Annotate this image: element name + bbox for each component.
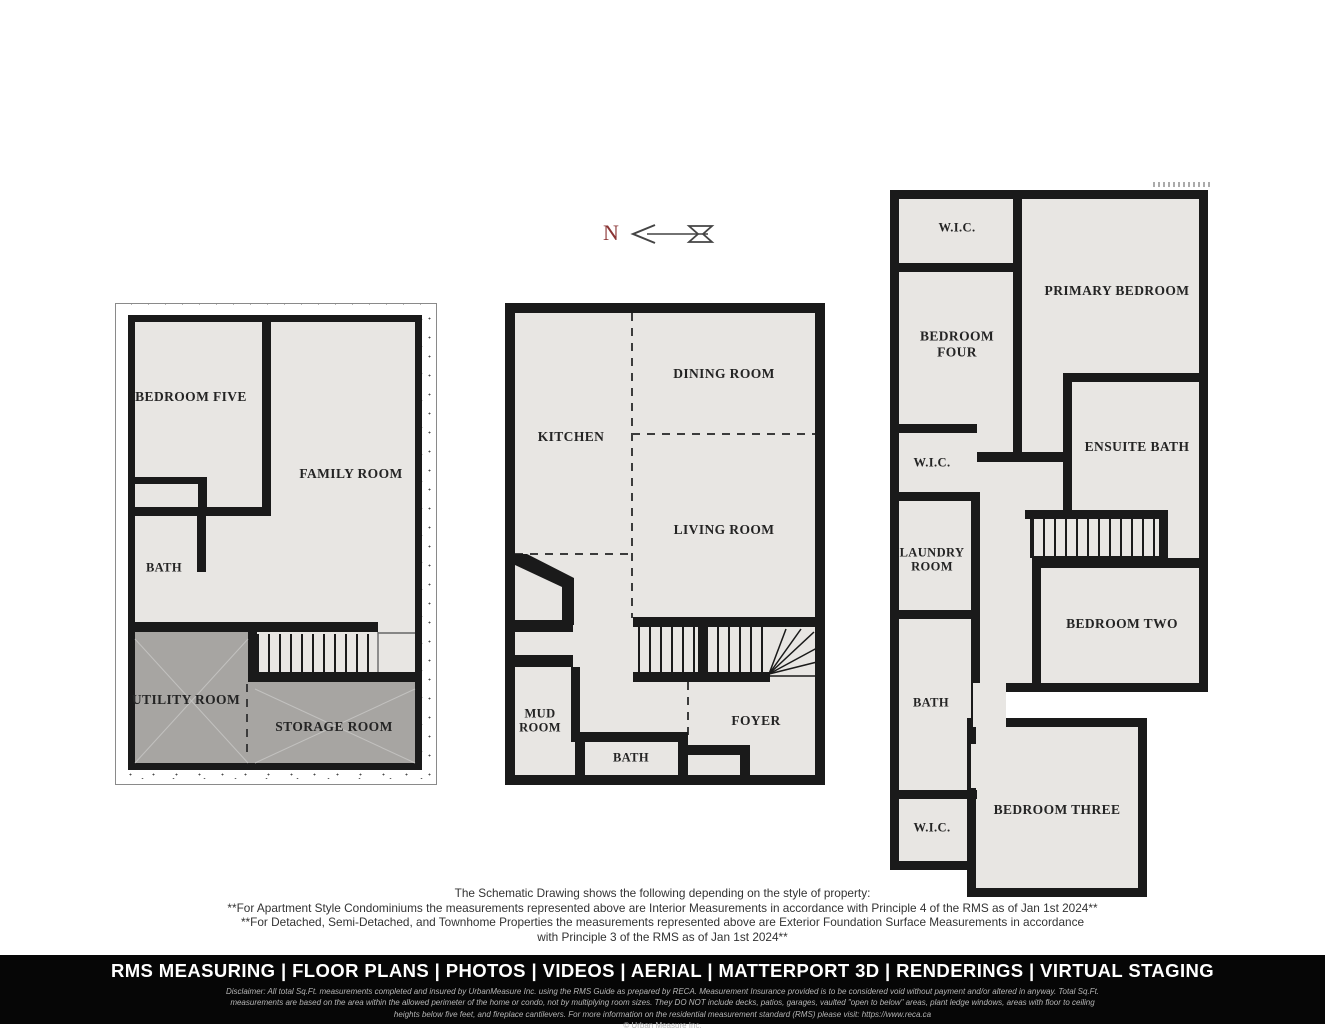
wall	[1025, 510, 1168, 519]
room-label-mud-room: MUD ROOM	[509, 707, 571, 736]
room-label-wic-mid: W.I.C.	[913, 456, 950, 471]
room-label-bedroom-three: BEDROOM THREE	[994, 802, 1121, 818]
upper-floor-plan: W.I.C. PRIMARY BEDROOM BEDROOM FOUR ENSU…	[888, 186, 1214, 902]
room-label-bedroom-four: BEDROOM FOUR	[910, 328, 1004, 359]
room-label-ensuite-bath: ENSUITE BATH	[1085, 439, 1190, 455]
footer-fine-print-line: Disclaimer: All total Sq.Ft. measurement…	[0, 986, 1325, 997]
wall	[898, 263, 1022, 272]
room-label-laundry-room: LAUNDRY ROOM	[896, 546, 968, 575]
room-label-utility-room: UTILITY ROOM	[132, 692, 240, 708]
disclaimer-line: **For Apartment Style Condominiums the m…	[0, 901, 1325, 916]
room-label-primary-bedroom: PRIMARY BEDROOM	[1045, 283, 1190, 299]
floor-plan-sheet: { "north_indicator": { "label": "N" }, "…	[0, 0, 1325, 1024]
footer-fine-print-line: measurements are based on the area withi…	[0, 997, 1325, 1008]
disclaimer-line: with Principle 3 of the RMS as of Jan 1s…	[0, 930, 1325, 945]
north-arrow: N	[595, 212, 735, 256]
footer-copyright: © Urban Measure Inc.	[0, 1021, 1325, 1030]
wall	[1063, 373, 1072, 518]
room-label-wic-bottom: W.I.C.	[913, 821, 950, 836]
hall-opening	[973, 683, 1006, 727]
disclaimer-line: **For Detached, Semi-Detached, and Townh…	[0, 915, 1325, 930]
wall	[1032, 558, 1041, 692]
door-opening	[971, 744, 980, 788]
room-label-bath-basement: BATH	[146, 561, 182, 576]
wall	[1013, 196, 1022, 462]
room-label-bedroom-two: BEDROOM TWO	[1066, 616, 1178, 632]
room-label-storage-room: STORAGE ROOM	[275, 719, 392, 735]
room-label-family-room: FAMILY ROOM	[299, 466, 402, 482]
wall	[1063, 373, 1208, 382]
north-letter: N	[603, 220, 619, 246]
basement-plan: BEDROOM FIVE FAMILY ROOM BATH UTILITY RO…	[115, 303, 437, 785]
room-label-foyer: FOYER	[731, 713, 780, 729]
room-label-bath-main: BATH	[613, 751, 649, 766]
wall	[890, 424, 977, 433]
wall	[890, 610, 977, 619]
basement-decor	[115, 303, 437, 785]
room-label-living-room: LIVING ROOM	[674, 522, 775, 538]
wall	[977, 452, 1072, 462]
staircase-upper	[1030, 519, 1159, 558]
schematic-disclaimer: The Schematic Drawing shows the followin…	[0, 886, 1325, 944]
main-floor-plan: KITCHEN DINING ROOM LIVING ROOM MUD ROOM…	[505, 303, 825, 785]
room-label-dining-room: DINING ROOM	[673, 366, 775, 382]
footer-bar: RMS MEASURING | FLOOR PLANS | PHOTOS | V…	[0, 955, 1325, 1024]
room-label-kitchen: KITCHEN	[538, 429, 605, 445]
room-label-wic-top: W.I.C.	[938, 221, 975, 236]
disclaimer-line: The Schematic Drawing shows the followin…	[0, 886, 1325, 901]
room-label-bath-upper: BATH	[913, 696, 949, 711]
wall	[890, 790, 977, 799]
footer-fine-print-line: heights below five feet, and fireplace c…	[0, 1009, 1325, 1020]
room-label-bedroom-five: BEDROOM FIVE	[135, 389, 247, 405]
wall	[1032, 558, 1208, 568]
footer-services-line: RMS MEASURING | FLOOR PLANS | PHOTOS | V…	[0, 960, 1325, 982]
